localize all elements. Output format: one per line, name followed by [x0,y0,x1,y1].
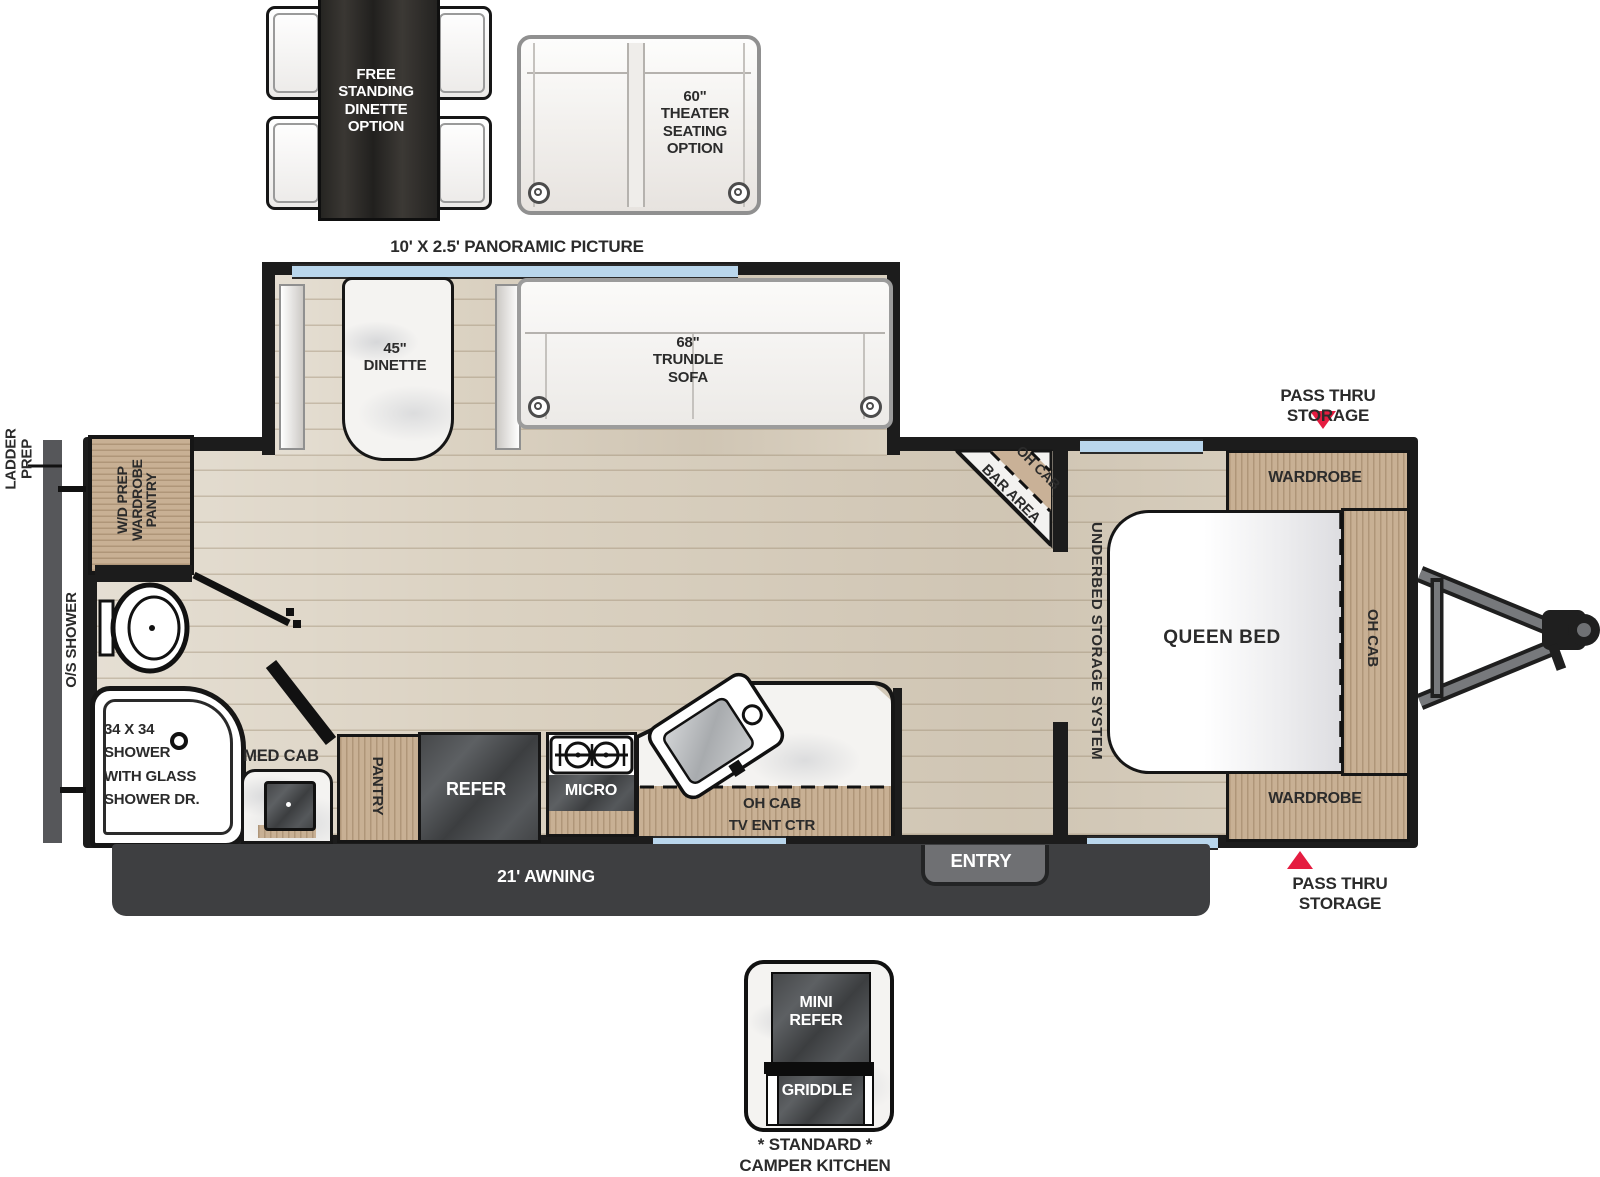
trailer-hitch [1420,574,1600,702]
camper-kitchen-caption: * STANDARD * CAMPER KITCHEN [710,1134,920,1177]
shower-label: 34 X 34 SHOWER WITH GLASS SHOWER DR. [102,718,226,811]
pass-thru-bottom-label: PASS THRU STORAGE [1250,874,1430,913]
entry-label: ENTRY [921,850,1041,871]
dinette-chair [266,116,326,210]
pass-thru-arrow-up-icon [1287,851,1313,869]
queen-bed-label: QUEEN BED [1132,627,1312,649]
med-cab-vanity [241,769,333,844]
camper-kitchen-unit [744,960,894,1132]
ladder-prep-label: LADDER PREP [3,428,35,489]
underbed-storage-label: UNDERBED STORAGE SYSTEM [1088,506,1104,776]
bedroom-window-top [1080,439,1203,454]
pantry-label: PANTRY [369,757,385,816]
cupholder-icon [528,396,550,418]
vanity-sink [264,781,316,831]
sink-drain-dot [286,802,291,807]
micro-base [549,811,634,834]
dinette-45-label: 45" DINETTE [345,340,445,375]
dinette-chair [266,6,326,100]
bumper-tie [60,787,86,793]
dinette-chair [432,116,492,210]
micro-label: MICRO [548,782,634,800]
rear-bumper-bar [43,440,62,843]
trundle-sofa-label: 68" TRUNDLE SOFA [628,334,748,386]
tv-ent-ctr-label: OH CAB TV ENT CTR [692,793,852,837]
kitchen-end-wall [893,688,902,836]
free-standing-dinette-label: FREE STANDING DINETTE OPTION [321,66,431,135]
dinette-bench [279,284,305,450]
cupholder-icon [528,182,550,204]
cupholder-icon [728,182,750,204]
pass-thru-top-label: PASS THRU STORAGE [1238,386,1418,425]
panoramic-picture-label: 10' X 2.5' PANORAMIC PICTURE [367,237,667,257]
wd-prep-label: W/D PREP WARDROBE PANTRY [115,459,159,541]
cupholder-icon [860,396,882,418]
bedroom-wall-stub [1053,451,1068,552]
refer-label: REFER [416,779,536,800]
range-zone [549,735,634,775]
bumper-tie [58,486,86,492]
bath-wall [95,565,192,582]
med-cab-label: MED CAB [231,747,331,766]
bedroom-wall-stub [1053,722,1068,836]
mini-refer-label: MINI REFER [766,994,866,1031]
bedroom-oh-cab-label: OH CAB [1364,609,1380,667]
camper-kitchen-divider [764,1062,874,1074]
griddle-label: GRIDDLE [767,1082,867,1100]
wardrobe-top-label: WARDROBE [1235,469,1395,487]
awning-label: 21' AWNING [466,866,626,886]
theater-seating-label: 60" THEATER SEATING OPTION [639,88,751,157]
floorplan-canvas: BAR AREA OH CAB [0,0,1600,1177]
os-shower-label: O/S SHOWER [64,585,80,695]
wardrobe-bottom-label: WARDROBE [1235,790,1395,808]
dinette-chair [432,6,492,100]
